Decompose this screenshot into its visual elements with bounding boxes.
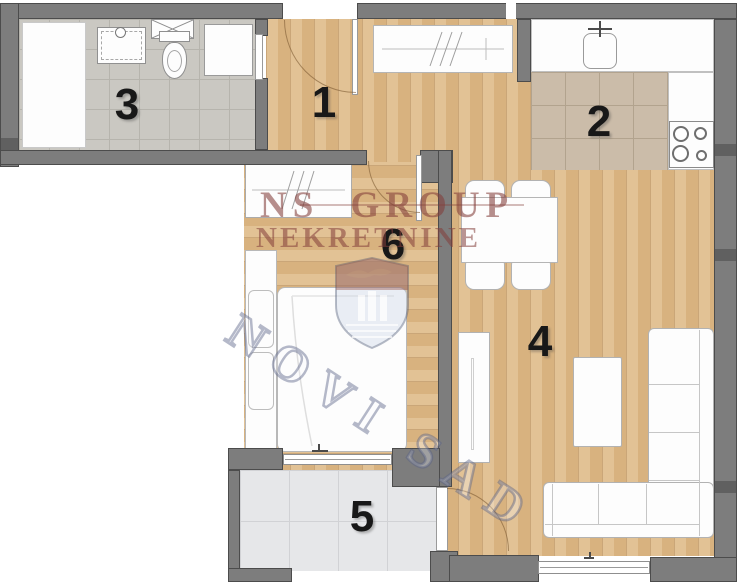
wall-terrace-top-left (228, 448, 283, 470)
sofa-cushion-line (649, 384, 699, 385)
wall-joint (1, 138, 18, 150)
tv-stand (458, 332, 490, 463)
wall-joint (715, 249, 736, 261)
toilet-bowl-inner (167, 50, 182, 72)
wall-right (714, 19, 737, 582)
wall-gap (506, 3, 516, 19)
hall-wardrobe (373, 25, 513, 73)
closet-shelf (248, 352, 274, 410)
dining-table (461, 197, 558, 263)
window-pane-line (540, 567, 648, 568)
kitchen-sink-icon (583, 33, 617, 69)
washbasin-bowl-icon (115, 27, 126, 38)
bedroom-wardrobe (245, 162, 352, 218)
floor-plan: 1 2 3 4 5 6 NS GROUP NEKRETNINE NOVI SAD (0, 0, 741, 582)
sofa-bottom-section (543, 482, 714, 538)
room-label-kitchen: 2 (587, 97, 611, 147)
wall-top-right (357, 3, 737, 19)
sofa-back-line (699, 330, 700, 536)
wall-bottom-left (449, 555, 539, 582)
wall-bath-bedroom-band (0, 150, 367, 165)
sofa-cushion-line (649, 432, 699, 433)
room-label-terrace: 5 (350, 492, 374, 542)
wall-bottom-right (650, 557, 737, 582)
watermark-underline (300, 204, 524, 206)
room-label-hallway: 1 (312, 78, 336, 128)
sofa-armrest-line (552, 484, 553, 536)
wall-bathroom-hall-lower (255, 78, 268, 150)
shower-tray (22, 22, 86, 148)
tv-stand-groove (471, 358, 474, 450)
toilet-tank (159, 31, 190, 42)
kitchen-counter-top (531, 19, 714, 72)
watermark-crest-icon (334, 257, 410, 349)
bathroom-door-leaf (255, 34, 263, 80)
room-label-bathroom: 3 (115, 80, 139, 130)
bathroom-cabinet (204, 24, 253, 76)
wall-joint (715, 144, 736, 156)
faucet-icon (599, 21, 601, 37)
window-handle-icon (318, 444, 320, 452)
burner-icon (694, 127, 707, 140)
burner-icon (696, 150, 707, 161)
sofa-cushion-line (646, 484, 647, 524)
room-label-living: 4 (528, 317, 552, 367)
closet-shelf (248, 290, 274, 348)
coffee-table (573, 357, 622, 447)
wall-joint (715, 481, 736, 493)
sofa-cushion-line (598, 484, 599, 524)
window-handle-icon (589, 552, 591, 559)
sofa-back-line (545, 524, 700, 525)
wall-top-left (8, 3, 283, 19)
burner-icon (673, 126, 689, 142)
window-pane-line (285, 459, 390, 460)
wall-terrace-bottom-left (228, 568, 292, 582)
bedroom-closet (245, 250, 277, 452)
sofa-cushion-line (649, 480, 699, 481)
window-handle-icon (312, 450, 328, 452)
burner-icon (672, 145, 689, 162)
wall-terrace-left (228, 470, 240, 573)
wall-bedroom-living-divider (438, 150, 452, 487)
wall-terrace-top-right (392, 448, 440, 487)
wall-kitchen-stub (517, 19, 531, 82)
